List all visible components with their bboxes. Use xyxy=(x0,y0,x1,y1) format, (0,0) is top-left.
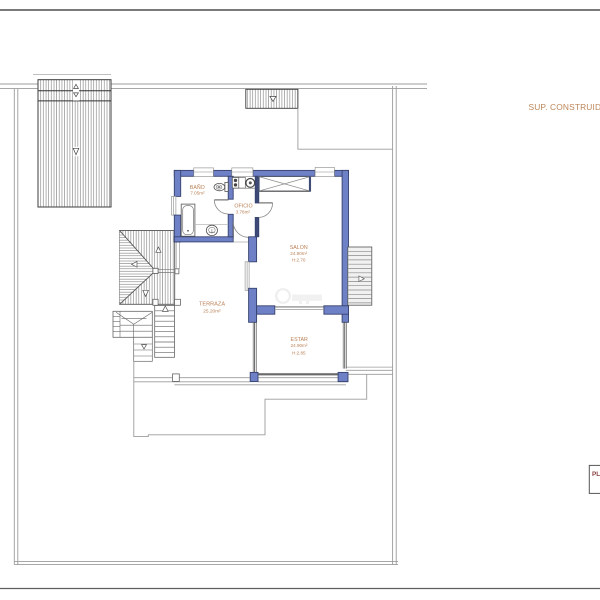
svg-text:25.20m²: 25.20m² xyxy=(203,308,221,314)
svg-text:H:2.85: H:2.85 xyxy=(292,351,306,356)
svg-text:SUP. CONSTRUIDA: SUP. CONSTRUIDA xyxy=(529,102,600,112)
svg-text:24.90m²: 24.90m² xyxy=(291,343,308,348)
svg-text:PL: PL xyxy=(592,471,600,478)
svg-text:H:2.70: H:2.70 xyxy=(292,258,306,263)
svg-text:24.90m²: 24.90m² xyxy=(290,251,307,256)
svg-text:TERRAZA: TERRAZA xyxy=(199,301,225,307)
svg-text:3.78m²: 3.78m² xyxy=(236,209,251,214)
svg-text:7.05m²: 7.05m² xyxy=(190,191,205,196)
